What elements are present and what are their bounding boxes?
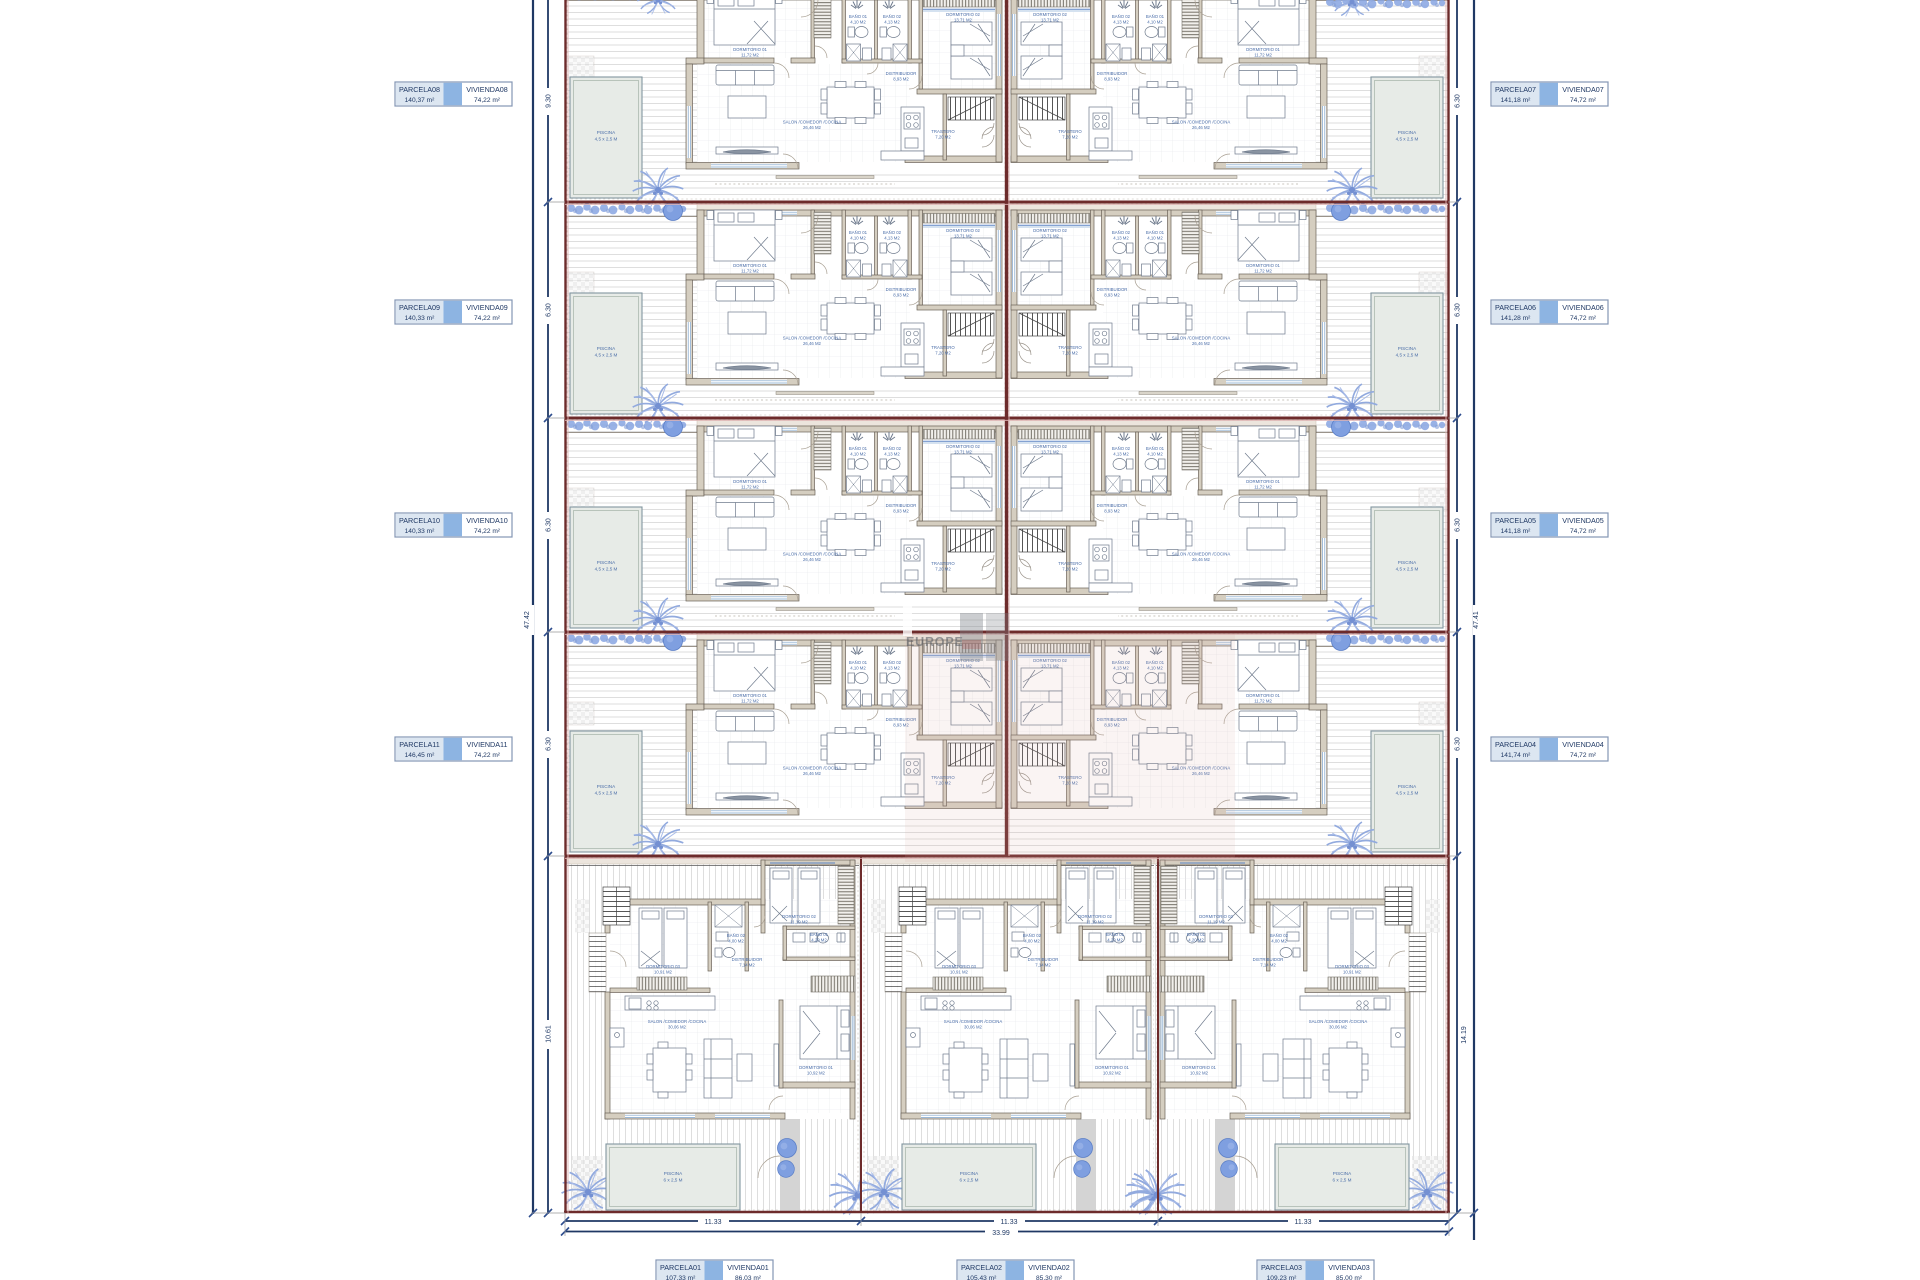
svg-text:74,72 m²: 74,72 m² [1570, 752, 1597, 759]
svg-text:PARCELA04: PARCELA04 [1495, 740, 1536, 749]
svg-text:86,03 m²: 86,03 m² [735, 1275, 762, 1280]
svg-text:146,45 m²: 146,45 m² [405, 752, 435, 759]
svg-text:141,18 m²: 141,18 m² [1501, 97, 1531, 104]
svg-text:6.30: 6.30 [1455, 737, 1462, 751]
svg-text:9.30: 9.30 [546, 94, 553, 108]
svg-text:107,33 m²: 107,33 m² [666, 1275, 696, 1280]
svg-text:6.30: 6.30 [1455, 94, 1462, 108]
svg-text:47.42: 47.42 [524, 611, 531, 629]
svg-text:6.30: 6.30 [546, 737, 553, 751]
svg-text:VIVIENDA03: VIVIENDA03 [1328, 1263, 1370, 1272]
svg-text:141,18 m²: 141,18 m² [1501, 528, 1531, 535]
svg-text:VIVIENDA09: VIVIENDA09 [466, 303, 508, 312]
svg-text:11.33: 11.33 [705, 1219, 722, 1226]
svg-text:11.33: 11.33 [1001, 1219, 1018, 1226]
svg-text:PARCELA09: PARCELA09 [399, 303, 440, 312]
svg-text:33.99: 33.99 [992, 1230, 1010, 1237]
svg-text:74,22 m²: 74,22 m² [474, 528, 501, 535]
svg-text:VIVIENDA01: VIVIENDA01 [727, 1263, 769, 1272]
svg-text:141,74 m²: 141,74 m² [1501, 752, 1531, 759]
svg-text:VIVIENDA06: VIVIENDA06 [1562, 303, 1604, 312]
svg-text:109,23 m²: 109,23 m² [1267, 1275, 1297, 1280]
svg-text:PARCELA06: PARCELA06 [1495, 303, 1536, 312]
svg-text:6.30: 6.30 [546, 303, 553, 317]
svg-text:PARCELA11: PARCELA11 [399, 740, 439, 749]
svg-text:VIVIENDA04: VIVIENDA04 [1562, 740, 1604, 749]
svg-text:141,28 m²: 141,28 m² [1501, 315, 1531, 322]
svg-text:6.30: 6.30 [1455, 518, 1462, 532]
svg-text:105,43 m²: 105,43 m² [967, 1275, 997, 1280]
svg-text:PARCELA10: PARCELA10 [399, 516, 440, 525]
svg-text:74,22 m²: 74,22 m² [474, 315, 501, 322]
svg-text:VIVIENDA10: VIVIENDA10 [466, 516, 508, 525]
svg-text:74,22 m²: 74,22 m² [474, 752, 501, 759]
svg-text:74,72 m²: 74,72 m² [1570, 528, 1597, 535]
svg-text:PARCELA02: PARCELA02 [961, 1263, 1002, 1272]
svg-text:VIVIENDA08: VIVIENDA08 [466, 85, 508, 94]
svg-text:PARCELA05: PARCELA05 [1495, 516, 1536, 525]
svg-text:VIVIENDA02: VIVIENDA02 [1028, 1263, 1070, 1272]
svg-text:74,22 m²: 74,22 m² [474, 97, 501, 104]
svg-text:74,72 m²: 74,72 m² [1570, 315, 1597, 322]
svg-text:PARCELA08: PARCELA08 [399, 85, 440, 94]
svg-text:6.30: 6.30 [546, 518, 553, 532]
svg-text:74,72 m²: 74,72 m² [1570, 97, 1597, 104]
svg-text:47.41: 47.41 [1473, 611, 1480, 629]
svg-text:85,00 m²: 85,00 m² [1336, 1275, 1363, 1280]
svg-text:10.61: 10.61 [546, 1025, 553, 1043]
svg-text:140,33 m²: 140,33 m² [405, 528, 435, 535]
svg-text:85,30 m²: 85,30 m² [1036, 1275, 1063, 1280]
svg-text:VIVIENDA05: VIVIENDA05 [1562, 516, 1604, 525]
svg-text:6.30: 6.30 [1455, 303, 1462, 317]
svg-text:140,33 m²: 140,33 m² [405, 315, 435, 322]
svg-text:VIVIENDA07: VIVIENDA07 [1562, 85, 1604, 94]
svg-text:140,37 m²: 140,37 m² [405, 97, 435, 104]
svg-text:PARCELA01: PARCELA01 [660, 1263, 701, 1272]
svg-text:14.19: 14.19 [1461, 1026, 1468, 1044]
svg-text:PARCELA07: PARCELA07 [1495, 85, 1536, 94]
svg-text:VIVIENDA11: VIVIENDA11 [466, 740, 507, 749]
svg-text:EUROPE: EUROPE [906, 635, 964, 649]
svg-text:11.33: 11.33 [1295, 1219, 1312, 1226]
svg-text:PARCELA03: PARCELA03 [1261, 1263, 1302, 1272]
